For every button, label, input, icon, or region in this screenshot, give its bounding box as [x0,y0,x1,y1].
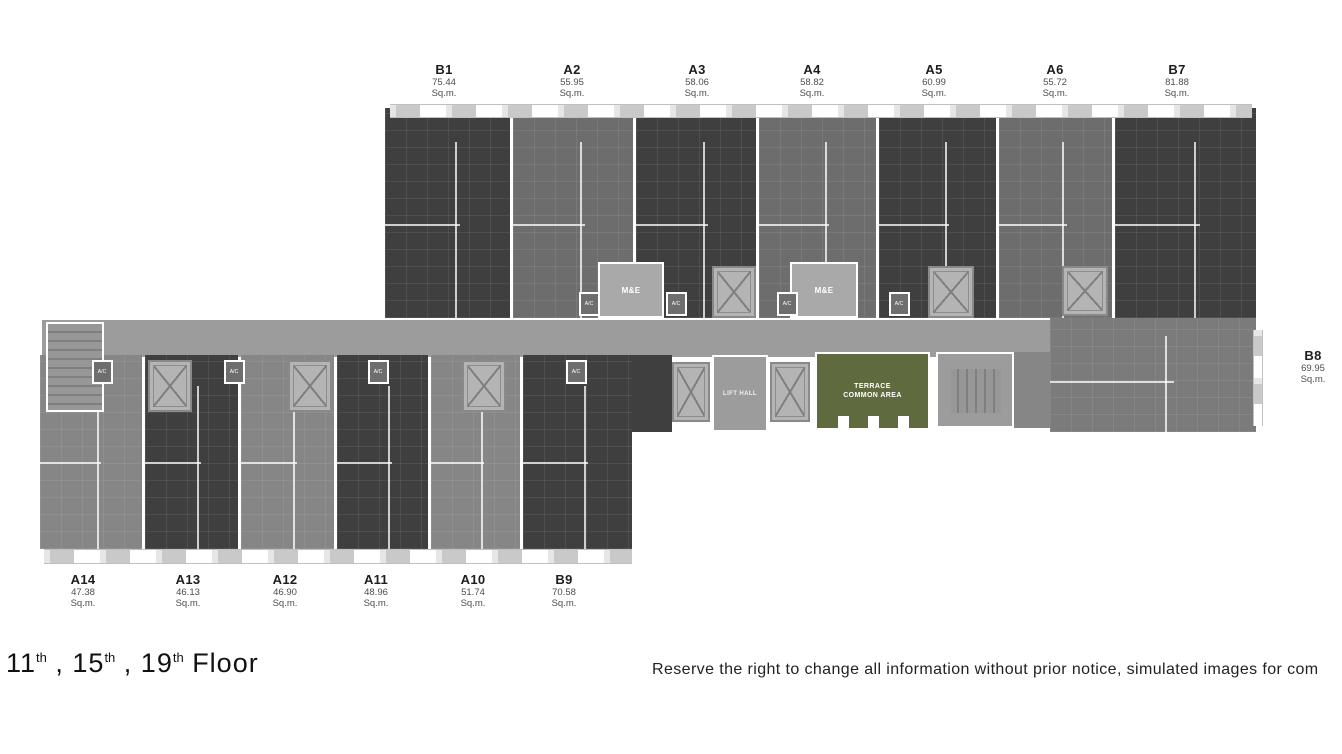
unit-block-a11 [337,355,428,549]
terrace-common-area: TERRACE COMMON AREA [815,352,930,430]
unit-block-b9 [523,355,632,549]
unit-area: 47.38 [51,587,115,598]
ac-label: A/C [230,369,239,374]
unit-label-a4: A4 58.82 Sq.m. [780,62,844,99]
unit-area: 60.99 [902,77,966,88]
me-room-2: M&E [790,262,858,318]
unit-block-b1 [385,108,510,318]
unit-sqm: Sq.m. [532,598,596,609]
unit-label-a14: A14 47.38 Sq.m. [51,572,115,609]
unit-name: A3 [665,62,729,77]
unit-label-a3: A3 58.06 Sq.m. [665,62,729,99]
lift-shaft [462,360,506,412]
unit-name: A2 [540,62,604,77]
unit-sqm: Sq.m. [1023,88,1087,99]
floor-suffix: th [173,650,184,665]
ac-closet: A/C [94,362,111,382]
me-room-1: M&E [598,262,664,318]
ac-closet: A/C [568,362,585,382]
lift-shaft [672,362,710,422]
unit-sqm: Sq.m. [780,88,844,99]
unit-area: 55.72 [1023,77,1087,88]
unit-area: 70.58 [532,587,596,598]
floor-separator: , [115,648,141,678]
unit-name: B8 [1288,348,1338,363]
unit-area: 46.13 [156,587,220,598]
ac-closet: A/C [370,362,387,382]
unit-name: A10 [441,572,505,587]
me-room-label: M&E [815,286,834,295]
unit-sqm: Sq.m. [253,598,317,609]
unit-label-b1: B1 75.44 Sq.m. [412,62,476,99]
terrace-label-line1: TERRACE [854,382,891,391]
unit-name: A5 [902,62,966,77]
unit-label-a13: A13 46.13 Sq.m. [156,572,220,609]
unit-label-b7: B7 81.88 Sq.m. [1145,62,1209,99]
floor-word: Floor [184,648,259,678]
unit-label-b8: B8 69.95 Sq.m. [1288,348,1338,385]
ac-closet: A/C [226,362,243,382]
balcony-strip-bottom [44,549,632,564]
lift-hall: LIFT HALL [712,355,768,432]
balcony-strip-top [390,104,1252,118]
floor-number: 15 [72,648,104,678]
ac-closet: A/C [779,294,796,314]
bottom-wing [40,355,632,549]
terrace-notch [868,416,879,432]
unit-label-a6: A6 55.72 Sq.m. [1023,62,1087,99]
disclaimer-text: Reserve the right to change all informat… [652,661,1342,679]
unit-label-a2: A2 55.95 Sq.m. [540,62,604,99]
unit-sqm: Sq.m. [665,88,729,99]
terrace-notch [838,416,849,432]
ac-label: A/C [672,301,681,306]
ac-closet: A/C [581,294,598,314]
stairwell-right [948,366,1004,416]
unit-label-b9: B9 70.58 Sq.m. [532,572,596,609]
floor-number: 19 [141,648,173,678]
unit-block-b8 [1050,318,1256,432]
floor-suffix: th [104,650,115,665]
unit-area: 69.95 [1288,363,1338,374]
balcony-strip-right [1253,330,1263,426]
ac-label: A/C [98,369,107,374]
floor-number: 11 [6,648,36,678]
unit-sqm: Sq.m. [902,88,966,99]
unit-sqm: Sq.m. [156,598,220,609]
me-room-label: M&E [622,286,641,295]
unit-name: B7 [1145,62,1209,77]
unit-name: B9 [532,572,596,587]
unit-name: A14 [51,572,115,587]
unit-name: A6 [1023,62,1087,77]
unit-area: 75.44 [412,77,476,88]
ac-label: A/C [585,301,594,306]
lift-shaft [712,266,756,318]
ac-label: A/C [895,301,904,306]
connector-block [1014,352,1052,428]
unit-sqm: Sq.m. [441,598,505,609]
unit-area: 51.74 [441,587,505,598]
unit-block-b7 [1115,108,1256,318]
floor-plan-page: B1 75.44 Sq.m. A2 55.95 Sq.m. A3 58.06 S… [0,0,1342,754]
ac-label: A/C [572,369,581,374]
unit-label-a5: A5 60.99 Sq.m. [902,62,966,99]
unit-area: 55.95 [540,77,604,88]
ac-closet: A/C [891,294,908,314]
unit-name: A4 [780,62,844,77]
lift-shaft [770,362,810,422]
unit-label-a12: A12 46.90 Sq.m. [253,572,317,609]
unit-area: 48.96 [344,587,408,598]
unit-label-a10: A10 51.74 Sq.m. [441,572,505,609]
floor-suffix: th [36,650,47,665]
unit-name: B1 [412,62,476,77]
lift-hall-label: LIFT HALL [723,391,757,397]
unit-sqm: Sq.m. [412,88,476,99]
unit-block-b9-extension [632,355,672,432]
unit-area: 58.82 [780,77,844,88]
unit-label-a11: A11 48.96 Sq.m. [344,572,408,609]
lift-shaft [1062,266,1108,316]
unit-sqm: Sq.m. [540,88,604,99]
lift-shaft [928,266,974,318]
unit-area: 46.90 [253,587,317,598]
ac-label: A/C [374,369,383,374]
unit-sqm: Sq.m. [51,598,115,609]
unit-name: A11 [344,572,408,587]
ac-label: A/C [783,301,792,306]
terrace-notch [898,416,909,432]
lift-shaft [288,360,332,412]
unit-sqm: Sq.m. [344,598,408,609]
floor-separator: , [47,648,73,678]
lift-shaft [148,360,192,412]
unit-sqm: Sq.m. [1145,88,1209,99]
unit-name: A13 [156,572,220,587]
terrace-label-line2: COMMON AREA [843,391,902,400]
floor-title: 11th , 15th , 19th Floor [6,648,259,679]
unit-sqm: Sq.m. [1288,374,1338,385]
ac-closet: A/C [668,294,685,314]
unit-area: 58.06 [665,77,729,88]
unit-area: 81.88 [1145,77,1209,88]
unit-name: A12 [253,572,317,587]
